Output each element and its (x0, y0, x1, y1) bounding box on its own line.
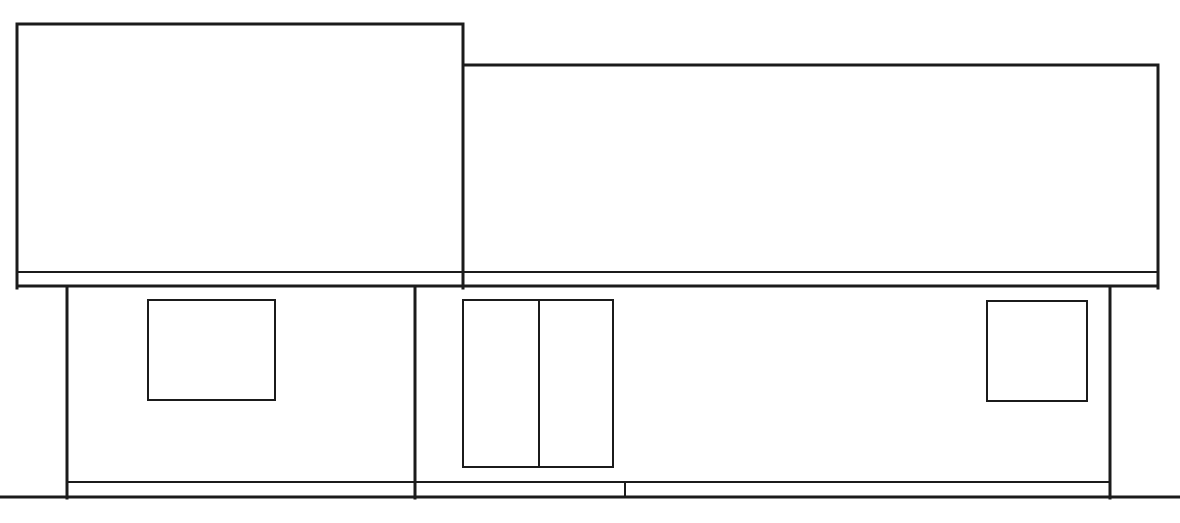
elevation-drawing (0, 0, 1180, 523)
right-window (987, 301, 1087, 401)
elevation-drawing-svg (0, 0, 1180, 523)
left-window (148, 300, 275, 400)
